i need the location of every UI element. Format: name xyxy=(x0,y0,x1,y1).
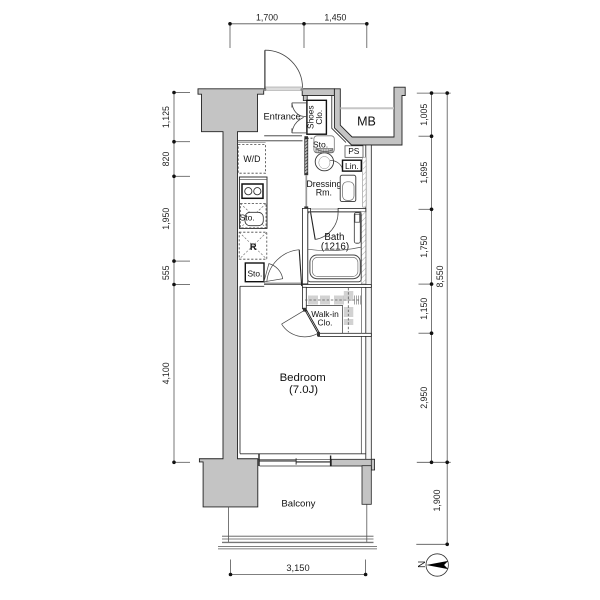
svg-text:1,900: 1,900 xyxy=(432,489,442,511)
svg-text:Lin.: Lin. xyxy=(345,161,359,171)
svg-text:Rm.: Rm. xyxy=(316,188,332,198)
svg-text:(7.0J): (7.0J) xyxy=(289,384,318,396)
svg-text:1,950: 1,950 xyxy=(161,208,171,230)
svg-text:1,125: 1,125 xyxy=(161,106,171,128)
svg-text:W/D: W/D xyxy=(243,154,260,164)
svg-text:Balcony: Balcony xyxy=(281,499,315,510)
svg-text:1,700: 1,700 xyxy=(256,13,278,23)
svg-text:1,150: 1,150 xyxy=(419,298,429,320)
svg-text:820: 820 xyxy=(161,152,171,167)
svg-text:Clo.: Clo. xyxy=(318,317,333,327)
svg-text:Sto.: Sto. xyxy=(240,213,255,223)
svg-text:PS: PS xyxy=(348,146,360,156)
svg-text:Sto.: Sto. xyxy=(247,268,262,278)
svg-text:1,450: 1,450 xyxy=(324,13,346,23)
svg-text:MB: MB xyxy=(357,115,376,129)
svg-text:1,750: 1,750 xyxy=(419,236,429,258)
svg-text:N: N xyxy=(415,561,426,568)
svg-text:R: R xyxy=(250,242,257,252)
svg-text:555: 555 xyxy=(161,265,171,280)
svg-text:Entrance: Entrance xyxy=(263,112,300,122)
svg-text:1,005: 1,005 xyxy=(419,104,429,126)
svg-text:3,150: 3,150 xyxy=(286,563,309,573)
svg-text:2,950: 2,950 xyxy=(419,387,429,409)
svg-text:4,100: 4,100 xyxy=(161,362,171,384)
svg-text:1,695: 1,695 xyxy=(419,162,429,184)
svg-text:Bedroom: Bedroom xyxy=(280,372,326,384)
svg-text:Sto.: Sto. xyxy=(313,139,328,149)
svg-text:8,550: 8,550 xyxy=(435,265,445,287)
